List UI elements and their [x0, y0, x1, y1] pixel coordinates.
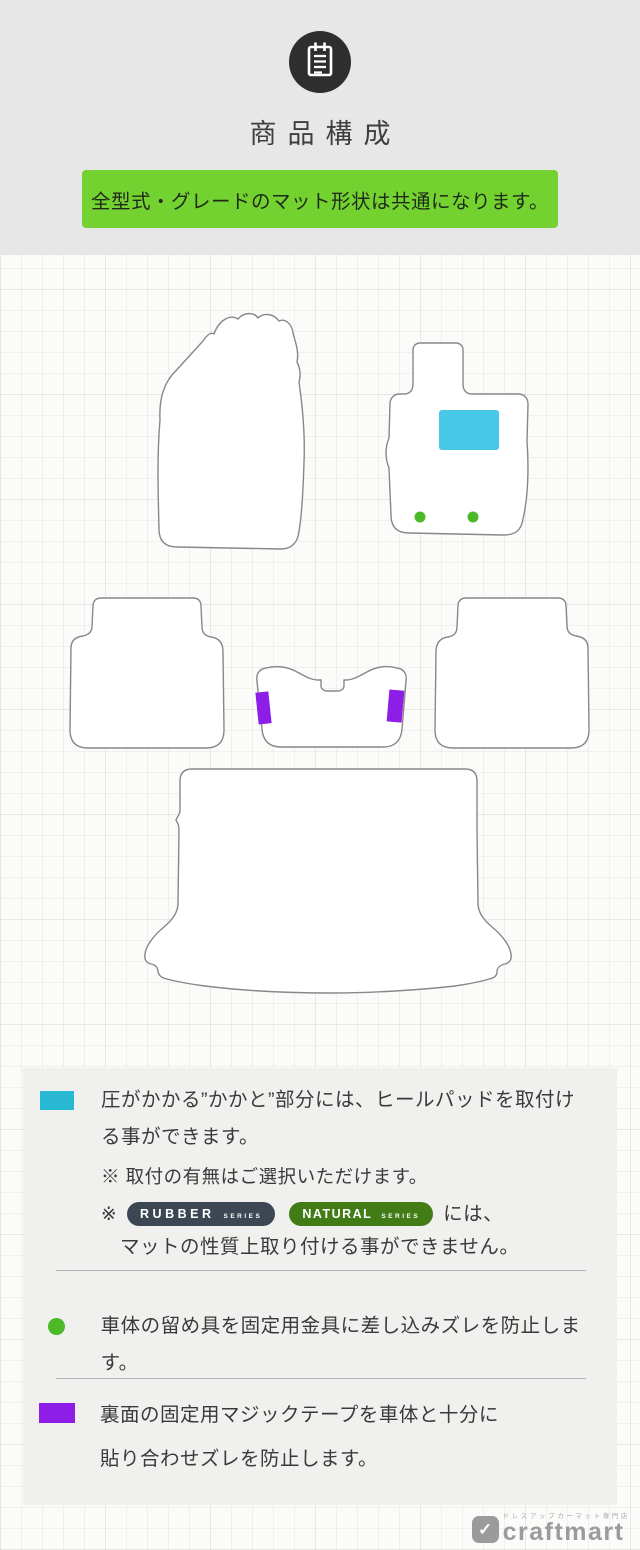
natural-series-sub: SERIES [381, 1213, 420, 1220]
trunk-mat-shape [145, 769, 511, 993]
asterisk-mark: ※ [101, 1199, 117, 1229]
memo-icon [288, 30, 352, 94]
product-composition-section: 商品構成 全型式・グレードのマット形状は共通になります。 [0, 0, 640, 1550]
rear-left-mat-shape [70, 598, 224, 748]
craftmart-logo: ✓ ドレスアップカーマット専門店 craftmart [472, 1510, 630, 1543]
legend-divider [56, 1378, 586, 1379]
legend-heelpad-note2-suffix: には、 [443, 1202, 503, 1226]
banner-note: 全型式・グレードのマット形状は共通になります。 [82, 170, 558, 228]
velcro-swatch [39, 1403, 75, 1423]
rear-right-mat-shape [435, 598, 589, 748]
heel-pad [439, 410, 499, 450]
natural-series-badge: NATURAL SERIES [289, 1202, 433, 1226]
page-title: 商品構成 [0, 112, 640, 151]
legend-divider [56, 1270, 586, 1271]
legend-heelpad-line2: る事ができます。 [101, 1119, 606, 1156]
center-mat-shape [257, 667, 406, 747]
legend-item-clip: 車体の留め具を固定用金具に差し込みズレを防止します。 [38, 1308, 607, 1382]
logo-wordmark: craftmart [503, 1521, 625, 1543]
legend-velcro-line1: 裏面の固定用マジックテープを車体と十分に [100, 1393, 605, 1437]
legend-clip-line1: 車体の留め具を固定用金具に差し込みズレを防止します。 [101, 1308, 607, 1382]
fixing-clip-dot [415, 512, 426, 523]
legend-card: 圧がかかる”かかと”部分には、ヒールパッドを取付け る事ができます。 ※ 取付の… [23, 1068, 617, 1505]
header-section: 商品構成 全型式・グレードのマット形状は共通になります。 [0, 0, 640, 255]
heel-pad-swatch [40, 1091, 74, 1110]
legend-item-heelpad: 圧がかかる”かかと”部分には、ヒールパッドを取付け る事ができます。 ※ 取付の… [38, 1082, 607, 1260]
rubber-series-label: RUBBER [140, 1202, 214, 1226]
legend-heelpad-note2: ※ RUBBER SERIES NATURAL SERIES には、 [101, 1199, 606, 1229]
driver-mat-shape [158, 314, 304, 549]
logo-icon-glyph: ✓ [478, 1520, 492, 1540]
legend-heelpad-note2-line2: マットの性質上取り付ける事ができません。 [101, 1234, 606, 1260]
fixing-clip-dot [468, 512, 479, 523]
legend-heelpad-note1: ※ 取付の有無はご選択いただけます。 [101, 1162, 606, 1192]
velcro-strip [387, 689, 405, 722]
rubber-series-badge: RUBBER SERIES [127, 1202, 275, 1226]
natural-series-label: NATURAL [302, 1202, 372, 1226]
rubber-series-sub: SERIES [224, 1213, 263, 1220]
legend-velcro-line2: 貼り合わせズレを防止します。 [100, 1437, 605, 1481]
logo-icon: ✓ [472, 1516, 499, 1543]
legend-heelpad-line1: 圧がかかる”かかと”部分には、ヒールパッドを取付け [101, 1082, 606, 1119]
mats-board: 圧がかかる”かかと”部分には、ヒールパッドを取付け る事ができます。 ※ 取付の… [0, 255, 640, 1550]
legend-item-velcro: 裏面の固定用マジックテープを車体と十分に 貼り合わせズレを防止します。 [38, 1393, 607, 1481]
clip-dot-swatch [48, 1318, 65, 1335]
